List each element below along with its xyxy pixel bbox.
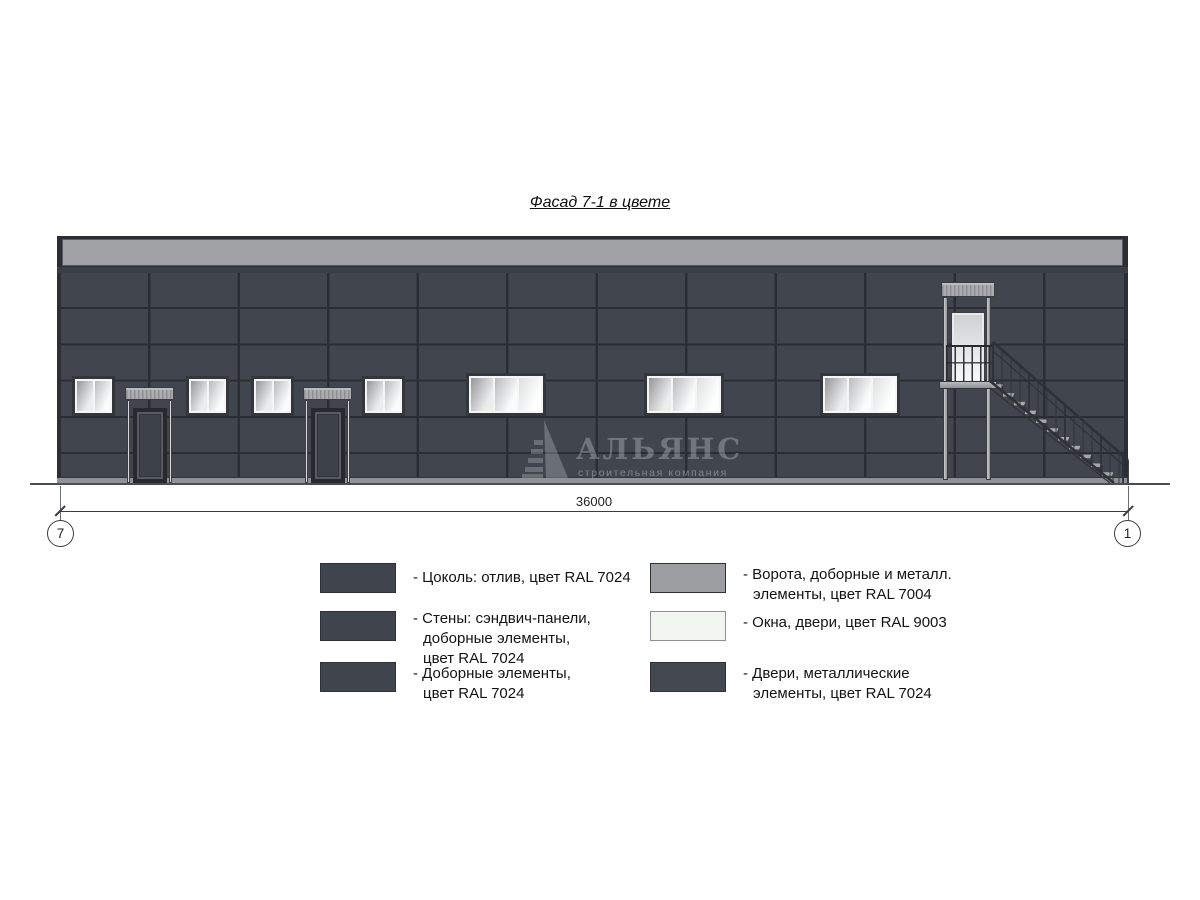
glass-pane bbox=[673, 378, 695, 411]
legend-label-doors: - Двери, металлические элементы, цвет RA… bbox=[743, 664, 1013, 704]
glass-pane bbox=[495, 378, 517, 411]
window-3pane bbox=[466, 373, 546, 416]
glass-pane bbox=[274, 381, 290, 411]
legend-label-plinth: - Цоколь: отлив, цвет RAL 7024 bbox=[413, 568, 673, 588]
window-2pane bbox=[362, 376, 405, 416]
glass-pane bbox=[209, 381, 225, 411]
legend-swatch-walls bbox=[320, 611, 396, 641]
window-2pane bbox=[251, 376, 294, 416]
window-2pane bbox=[72, 376, 115, 416]
legend-swatch-plinth bbox=[320, 563, 396, 593]
entrance-door bbox=[311, 408, 345, 483]
legend-label-walls: - Стены: сэндвич-панели, доборные элемен… bbox=[413, 609, 673, 669]
glass-pane bbox=[697, 378, 719, 411]
exterior-staircase bbox=[930, 330, 1140, 490]
glass-pane bbox=[367, 381, 383, 411]
drawing-title: Фасад 7-1 в цвете bbox=[0, 194, 1200, 212]
legend-swatch-windows bbox=[650, 611, 726, 641]
glass-pane bbox=[256, 381, 272, 411]
ground-line bbox=[30, 483, 1170, 485]
parapet-cornice bbox=[62, 239, 1123, 266]
glass-pane bbox=[649, 378, 671, 411]
dimension-value: 36000 bbox=[539, 494, 649, 509]
glass-pane bbox=[825, 378, 847, 411]
window-3pane bbox=[820, 373, 900, 416]
extension-line-left bbox=[60, 486, 61, 521]
door-canopy bbox=[303, 387, 352, 400]
drawing-page: Фасад 7-1 в цвете bbox=[0, 0, 1200, 900]
glass-pane bbox=[519, 378, 541, 411]
legend-label-trim: - Доборные элементы, цвет RAL 7024 bbox=[413, 664, 673, 704]
legend-swatch-gates bbox=[650, 563, 726, 593]
glass-pane bbox=[849, 378, 871, 411]
glass-pane bbox=[471, 378, 493, 411]
axis-marker-7: 7 bbox=[47, 520, 74, 547]
canopy-post bbox=[347, 400, 350, 483]
legend-label-gates: - Ворота, доборные и металл. элементы, ц… bbox=[743, 565, 1013, 605]
stair-tower-canopy bbox=[941, 282, 995, 297]
glass-pane bbox=[385, 381, 401, 411]
window-3pane bbox=[644, 373, 724, 416]
dimension-line bbox=[60, 511, 1128, 512]
canopy-post bbox=[127, 400, 130, 483]
door-canopy bbox=[125, 387, 174, 400]
legend-swatch-doors bbox=[650, 662, 726, 692]
extension-line-right bbox=[1128, 486, 1129, 521]
axis-marker-1: 1 bbox=[1114, 520, 1141, 547]
window-2pane bbox=[186, 376, 229, 416]
glass-pane bbox=[77, 381, 93, 411]
canopy-post bbox=[305, 400, 308, 483]
glass-pane bbox=[191, 381, 207, 411]
entrance-door bbox=[133, 408, 167, 483]
canopy-post bbox=[169, 400, 172, 483]
legend-label-windows: - Окна, двери, цвет RAL 9003 bbox=[743, 613, 1013, 633]
legend-swatch-trim bbox=[320, 662, 396, 692]
glass-pane bbox=[95, 381, 111, 411]
glass-pane bbox=[873, 378, 895, 411]
